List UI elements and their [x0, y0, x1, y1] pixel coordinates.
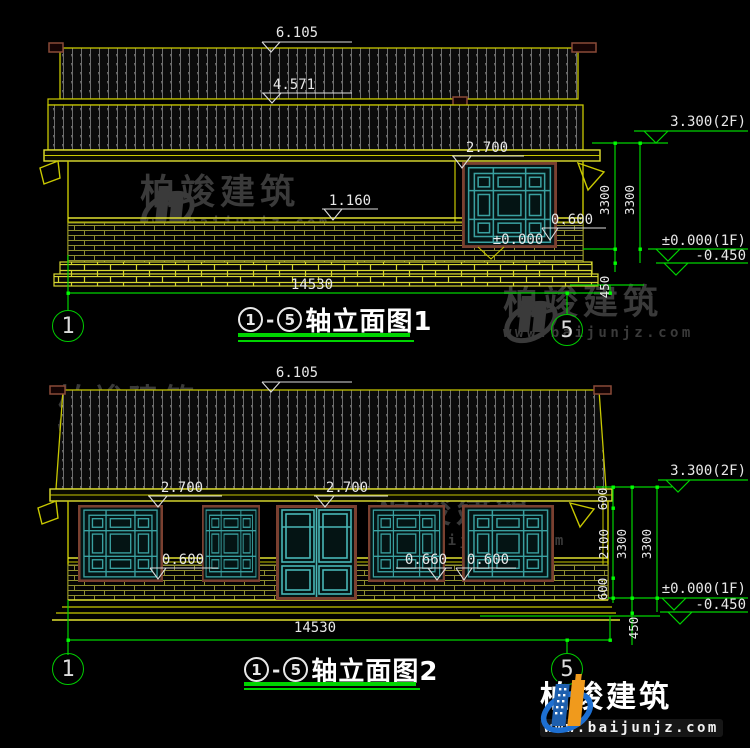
elevation-drawing-svg: 6.105 4.571 2.700 1.160 0.600 ±0.000 145… [0, 0, 750, 748]
elev2-building [38, 386, 620, 620]
dim-sill-mid: 0.660 [405, 552, 447, 568]
level-plinth: 450 [626, 617, 641, 640]
title-axis-end: 5 [283, 657, 308, 682]
axis-bubble-1-elev2: 1 [52, 653, 84, 685]
title-axis-end: 5 [277, 307, 302, 332]
title-underline-thin [238, 340, 414, 342]
dim-window-top-left: 2.700 [161, 480, 203, 496]
level-seg-top: 600 [595, 488, 610, 511]
gutter-bracket-right [570, 503, 594, 527]
gutter-bracket-left [38, 501, 58, 524]
brand-logo-icon [540, 672, 596, 742]
dim-tier2-height: 4.571 [273, 77, 315, 93]
dim-window-top-right: 2.700 [326, 480, 368, 496]
lattice-window [203, 506, 259, 580]
level-below-grade: -0.450 [695, 597, 746, 613]
dim-overall-width: 14530 [291, 277, 333, 293]
lattice-window [369, 506, 444, 580]
axis-number: 5 [560, 318, 573, 343]
axis-bubble-1-elev1: 1 [52, 310, 84, 342]
axis-number: 1 [61, 314, 74, 339]
title-axis-start: 1 [238, 307, 263, 332]
level-roof-2f: 3.300(2F) [670, 463, 746, 479]
dim-ridge-height: 6.105 [276, 25, 318, 41]
double-door [278, 507, 356, 599]
lattice-window [79, 506, 161, 580]
title-axis-start: 1 [244, 657, 269, 682]
level-below-grade: -0.450 [695, 248, 746, 264]
gutter-bracket-left [40, 161, 60, 184]
axis-number: 1 [61, 657, 74, 682]
title-underline-thick [244, 682, 416, 686]
level-seg-mid: 2100 [596, 529, 611, 559]
dim-window-top: 2.700 [466, 140, 508, 156]
title-dash: - [266, 308, 274, 332]
level-floor-1f: ±0.000(1F) [662, 233, 746, 249]
dim-overall-width: 14530 [294, 620, 336, 636]
elev1-building [40, 43, 604, 286]
dim-ground-level: ±0.000 [493, 232, 544, 248]
axis-bubble-5-elev1: 5 [551, 314, 583, 346]
elev2-level-text: 3.300(2F) 600 2100 600 3300 3300 ±0.000(… [595, 463, 746, 639]
level-floor-1f: ±0.000(1F) [662, 581, 746, 597]
title-underline-thick [238, 333, 410, 337]
lattice-window [463, 506, 552, 580]
level-story-b: 3300 [639, 529, 654, 559]
level-story-a: 3300 [614, 529, 629, 559]
title-dash: - [272, 658, 280, 682]
dim-sill-right: 0.600 [467, 552, 509, 568]
level-seg-bottom: 600 [595, 578, 610, 601]
title-underline-thin [244, 688, 420, 690]
dim-sill-height: 1.160 [329, 193, 371, 209]
cad-canvas: 柏竣建筑 www.baijunjz.com 柏竣建筑 www.baijunjz.… [0, 0, 750, 748]
level-story-a: 3300 [597, 185, 612, 215]
level-roof-2f: 3.300(2F) [670, 114, 746, 130]
dim-sill-left: 0.600 [162, 552, 204, 568]
level-plinth: 450 [597, 276, 612, 299]
dim-ridge-height: 6.105 [276, 365, 318, 381]
brand-footer: 柏竣建筑 www.baijunjz.com [540, 672, 750, 748]
dim-plinth-height: 0.600 [551, 212, 593, 228]
level-story-b: 3300 [622, 185, 637, 215]
